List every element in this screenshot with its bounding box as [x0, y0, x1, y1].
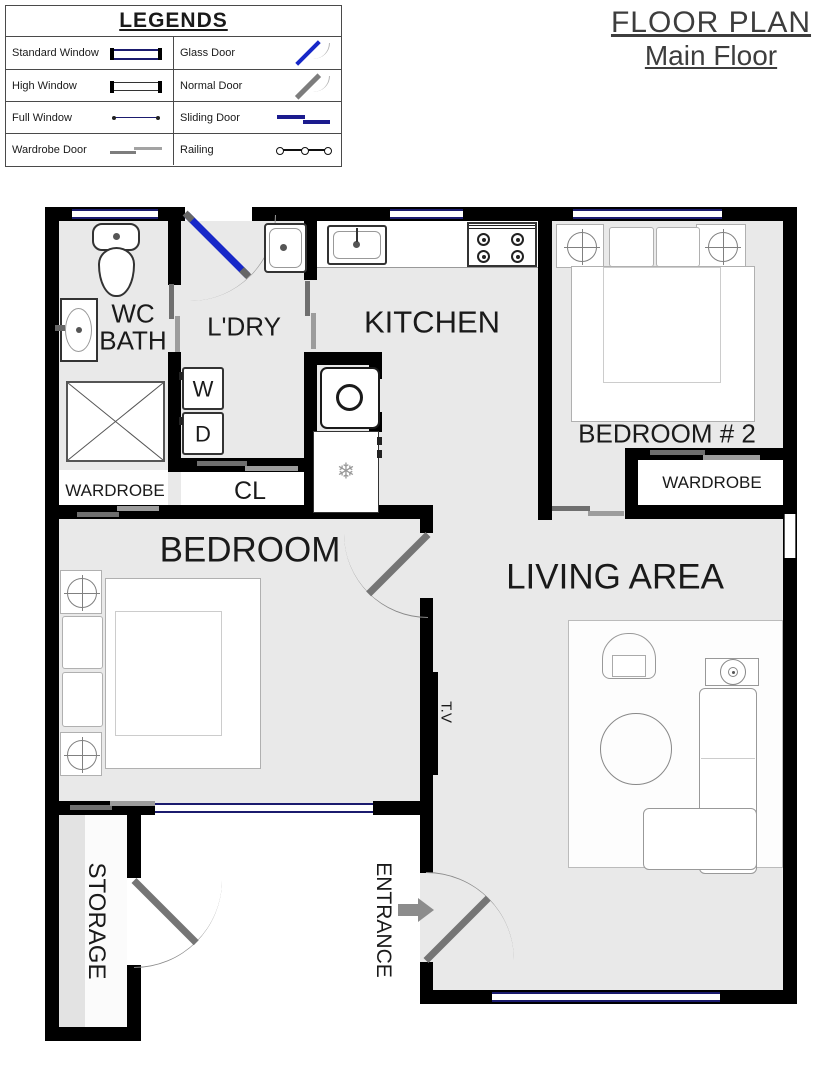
legend-label: High Window [12, 80, 77, 92]
high-window [784, 514, 796, 558]
normal-door-icon [274, 75, 334, 97]
lamp [67, 740, 97, 770]
lamp [67, 578, 97, 608]
sheet-title: FLOOR PLAN Main Floor [588, 6, 834, 72]
lamp [567, 232, 597, 262]
stove-panel [469, 225, 535, 229]
room-label-bedroom: BEDROOM [160, 533, 341, 570]
wardrobe-door-mark [117, 506, 159, 511]
room-label-wc-bath: WC BATH [99, 301, 166, 356]
legend-label: Wardrobe Door [12, 144, 87, 156]
wall [538, 207, 552, 520]
window [155, 803, 373, 813]
sink-drain [76, 327, 82, 333]
wardrobe-door-mark [650, 450, 705, 455]
legend-item-full-window: Full Window [6, 101, 173, 133]
oven-ring [336, 384, 363, 411]
floor-plan-sheet: LEGENDS Standard Window Glass Door High … [0, 0, 839, 1080]
table-lamp-dot [732, 671, 735, 674]
glass-door-icon [274, 42, 334, 64]
wall [420, 962, 433, 1004]
tv-unit [428, 672, 438, 775]
faucet [353, 241, 360, 248]
round-table [600, 713, 672, 785]
room-label-laundry: L'DRY [207, 313, 281, 340]
wall [625, 505, 797, 519]
room-label-storage: STORAGE [82, 863, 110, 980]
legend-label: Railing [180, 144, 214, 156]
room-label-entrance: ENTRANCE [371, 862, 395, 978]
faucet-stem [356, 228, 358, 242]
legend-label: Full Window [12, 112, 72, 124]
bed-sheet [115, 611, 222, 736]
window [390, 209, 463, 219]
legend-item-sliding-door: Sliding Door [173, 101, 341, 133]
tv-label: T.V [438, 701, 455, 723]
room-label-wardrobe-bedroom2: WARDROBE [662, 474, 762, 492]
legend-label: Standard Window [12, 47, 99, 59]
sink-drain [280, 244, 287, 251]
fridge-hinge [377, 437, 382, 445]
shower [66, 381, 165, 462]
wardrobe-door-mark [77, 512, 119, 517]
wall [127, 965, 141, 1041]
room-label-bedroom2: BEDROOM # 2 [578, 420, 756, 447]
window [573, 209, 722, 219]
room-label-wardrobe-main: WARDROBE [65, 482, 165, 500]
legend-item-high-window: High Window [6, 69, 173, 101]
sliding-door-mark [175, 316, 180, 352]
wall [420, 505, 433, 533]
appliance-hinge [179, 372, 183, 380]
room-label-kitchen: KITCHEN [364, 307, 500, 340]
legend-item-normal-door: Normal Door [173, 69, 341, 101]
burner [477, 250, 490, 263]
window [492, 992, 720, 1002]
standard-window-icon [106, 42, 166, 64]
appliance-hinge [179, 417, 183, 425]
legend-label: Glass Door [180, 47, 235, 59]
legend-item-glass-door: Glass Door [173, 37, 341, 69]
wardrobe-door-icon [106, 139, 166, 161]
wardrobe-door-mark [70, 805, 112, 810]
high-window-icon [106, 75, 166, 97]
legend-title: LEGENDS [6, 6, 341, 37]
fridge-hinge [377, 450, 382, 458]
pillow [656, 227, 700, 267]
sliding-door-mark [169, 284, 174, 319]
wall [420, 815, 433, 873]
sofa-divider [701, 758, 755, 759]
page-title: FLOOR PLAN [588, 6, 834, 40]
lamp [708, 232, 738, 262]
wardrobe-door-mark [245, 466, 298, 471]
bath-line: BATH [99, 326, 166, 356]
legend-item-wardrobe-door: Wardrobe Door [6, 133, 173, 165]
page-subtitle: Main Floor [588, 40, 834, 72]
wall [168, 352, 181, 472]
dryer-label: D [195, 422, 211, 445]
legend-item-standard-window: Standard Window [6, 37, 173, 69]
snowflake-icon: ❄ [337, 459, 355, 482]
sofa-seat [643, 808, 757, 870]
pillow [62, 616, 103, 669]
legend-item-railing: Railing [173, 133, 341, 165]
burner [511, 233, 524, 246]
wall [127, 815, 141, 878]
washer-label: W [193, 377, 214, 400]
pillow [609, 227, 654, 267]
pillow [62, 672, 103, 727]
legend-label: Normal Door [180, 80, 242, 92]
sliding-door-mark [311, 313, 316, 349]
window [72, 209, 158, 219]
entrance-arrow-head [418, 898, 434, 922]
bed-sheet [603, 267, 721, 383]
room-label-closet: CL [234, 478, 266, 504]
wall [45, 207, 59, 1041]
burner [477, 233, 490, 246]
sliding-door-icon [274, 107, 334, 129]
wc-line: WC [111, 299, 154, 329]
armchair-seat [612, 655, 646, 677]
wardrobe-door-mark [110, 801, 155, 806]
legend-label: Sliding Door [180, 112, 240, 124]
wall [783, 207, 797, 1004]
legend-box: LEGENDS Standard Window Glass Door High … [5, 5, 342, 167]
wardrobe-door-mark [197, 461, 247, 466]
wall [373, 801, 433, 815]
entrance-arrow [398, 904, 418, 916]
railing-icon [274, 139, 334, 161]
toilet-tank-button [113, 233, 120, 240]
wall [304, 352, 382, 365]
sliding-door-mark [588, 511, 624, 516]
burner [511, 250, 524, 263]
faucet [55, 325, 65, 331]
full-window-icon [106, 107, 166, 129]
sliding-door-mark [552, 506, 590, 511]
wall [168, 207, 181, 285]
sliding-door-mark [305, 281, 310, 316]
room-label-living: LIVING AREA [506, 560, 724, 597]
